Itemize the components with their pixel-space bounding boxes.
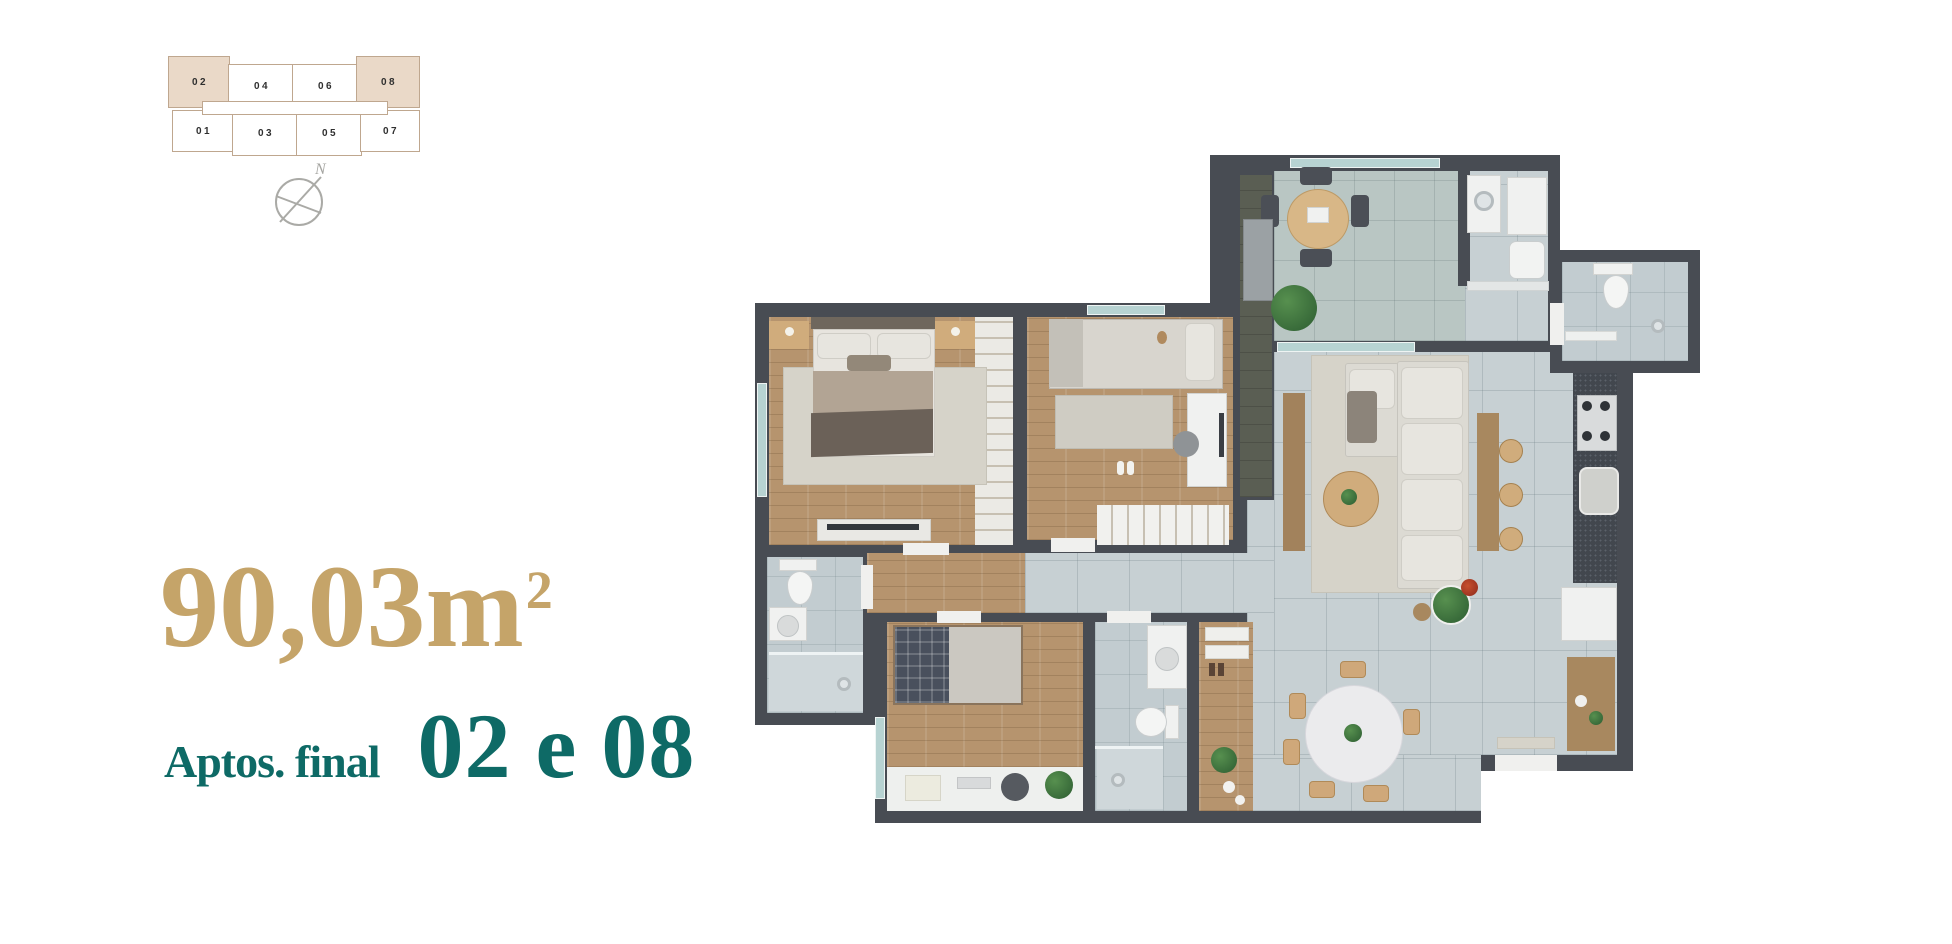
plant (1045, 771, 1073, 799)
large-plant (1271, 285, 1317, 331)
plant (1589, 711, 1603, 725)
keyplan-unit-03: 03 (232, 110, 298, 156)
dining-chair (1289, 693, 1306, 719)
building-key-plan: 02 04 06 08 01 03 05 07 (168, 56, 420, 154)
plant-centerpiece (1344, 724, 1362, 742)
door-opening (1051, 538, 1095, 552)
keyplan-unit-07: 07 (360, 110, 420, 152)
lavabo-floor (1562, 262, 1688, 361)
bar-stool (1499, 439, 1523, 463)
shower-drain (837, 677, 851, 691)
slipper (1117, 461, 1124, 475)
office-chair (1001, 773, 1029, 801)
shower-area (1097, 749, 1163, 809)
teddy-bear (1157, 331, 1167, 344)
slipper (1127, 461, 1134, 475)
dining-chair (1403, 709, 1420, 735)
bar-stool (1499, 483, 1523, 507)
area-label: 90,03m2 (160, 548, 553, 666)
sofa-cushion (1401, 367, 1463, 419)
corridor-floor (867, 553, 1025, 613)
burner (1600, 431, 1610, 441)
plant (1341, 489, 1357, 505)
cup (1235, 795, 1245, 805)
dining-chair (1309, 781, 1335, 798)
bedroom2-rug (1055, 395, 1173, 449)
shower-glass (1095, 746, 1163, 749)
dining-chair (1340, 661, 1366, 678)
shelf (1565, 331, 1617, 341)
tv (827, 524, 919, 530)
balcony-chair (1351, 195, 1369, 227)
door-opening (937, 611, 981, 623)
entry-recess (1481, 771, 1656, 825)
dining-chair (1283, 739, 1300, 765)
caption-units: 02 e 08 (417, 700, 695, 792)
burner (1600, 401, 1610, 411)
toilet (1135, 707, 1167, 737)
side-stool (1413, 603, 1431, 621)
desk-chair (1173, 431, 1199, 457)
door-opening (903, 543, 949, 555)
entry-console (1567, 657, 1615, 751)
balcony-chair (1300, 167, 1332, 185)
clothes-rack (1097, 505, 1229, 545)
sofa-cushion (1401, 479, 1463, 531)
entry-doormat (1497, 737, 1555, 749)
monitor (1219, 413, 1224, 457)
keyplan-unit-label: 07 (381, 126, 399, 137)
shelf (1467, 281, 1549, 291)
keyboard (957, 777, 991, 789)
tray (1307, 207, 1329, 223)
area-unit: m (426, 541, 524, 672)
decor-bowl (1575, 695, 1587, 707)
master-bed-headboard (811, 317, 935, 329)
keyplan-unit-label: 05 (320, 128, 338, 139)
toilet-tank (1593, 263, 1633, 275)
keyplan-unit-label: 08 (379, 77, 397, 88)
toilet-tank (779, 559, 817, 571)
bar-counter (1477, 413, 1499, 551)
balcony-chair (1300, 249, 1332, 267)
compass-north-label: N (314, 161, 327, 178)
tv-cabinet (817, 519, 931, 541)
keyplan-unit-label: 01 (194, 126, 212, 137)
plant (1211, 747, 1237, 773)
dining-chair (1363, 785, 1389, 802)
shelf (1205, 645, 1249, 659)
washer-door (1474, 191, 1494, 211)
cabinet (1507, 177, 1547, 235)
kitchen-sink (1579, 467, 1619, 515)
shower-drain (1651, 319, 1665, 333)
area-superscript: 2 (526, 560, 553, 620)
compass-icon: N (263, 158, 341, 236)
shower-drain (1111, 773, 1125, 787)
keyplan-unit-05: 05 (296, 110, 362, 156)
hall-floor (1025, 553, 1274, 613)
lamp (951, 327, 960, 336)
area-value: 90,03 (160, 541, 426, 672)
door-opening (1550, 303, 1564, 345)
bedroom2-window (1087, 305, 1165, 315)
book (905, 775, 941, 801)
keyplan-unit-label: 02 (190, 77, 208, 88)
laundry-sink (1509, 241, 1545, 279)
sink-bowl (777, 615, 799, 637)
burner (1582, 431, 1592, 441)
fridge (1561, 587, 1617, 641)
bottle (1209, 663, 1215, 676)
floor-plan (755, 155, 1705, 825)
pillow (1185, 323, 1215, 381)
cup (1223, 781, 1235, 793)
bed-pillows-navy (895, 627, 949, 703)
keyplan-unit-label: 03 (256, 128, 274, 139)
master-bedroom-window (757, 383, 767, 497)
apartment-caption: Aptos. final 02 e 08 (164, 700, 695, 792)
keyplan-unit-label: 04 (252, 81, 270, 92)
bottle (1218, 663, 1224, 676)
ac-unit (1243, 219, 1273, 301)
shower-glass (769, 652, 863, 655)
burner (1582, 401, 1592, 411)
door-opening (1107, 611, 1151, 623)
bedroom3-window (875, 717, 885, 799)
toilet-tank (1165, 705, 1179, 739)
keyplan-unit-label: 06 (316, 81, 334, 92)
lamp (785, 327, 794, 336)
sofa-throw (1347, 391, 1377, 443)
entry-door (1495, 755, 1557, 771)
tv-panel (1283, 393, 1305, 551)
bar-stool (1499, 527, 1523, 551)
accent-pillow (847, 355, 891, 371)
caption-prefix: Aptos. final (164, 735, 379, 788)
door-opening (861, 565, 873, 609)
bed-throw (811, 409, 933, 457)
balcony-sliding-door (1277, 342, 1415, 352)
shelf (1205, 627, 1249, 641)
fruit-bowl (1461, 579, 1478, 596)
sink-bowl (1155, 647, 1179, 671)
sofa-cushion (1401, 423, 1463, 475)
keyplan-corridor (202, 101, 388, 115)
keyplan-unit-01: 01 (172, 110, 234, 152)
sofa-cushion (1401, 535, 1463, 581)
bed-fold (1049, 319, 1083, 387)
